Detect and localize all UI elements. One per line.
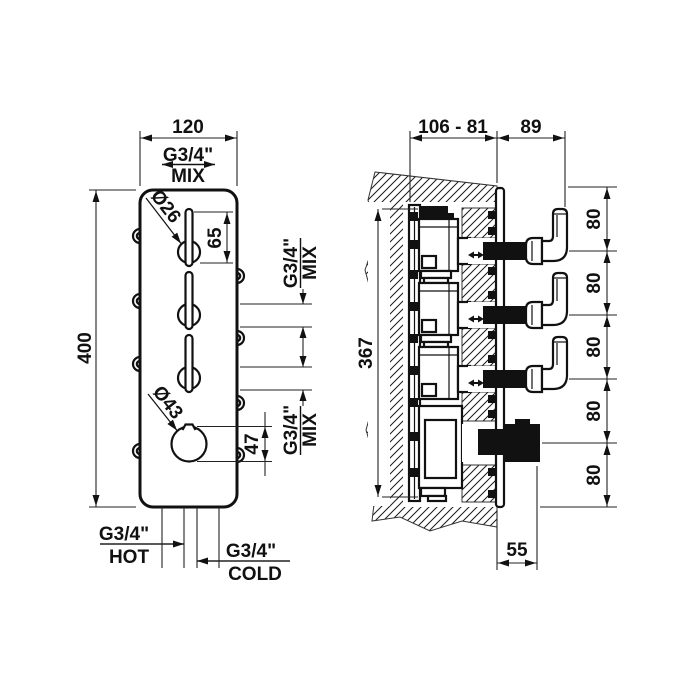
technical-drawing-page: 120 G3/4" MIX 400 Ø26 [0, 0, 700, 700]
label-hot-inlet: G3/4" HOT [99, 524, 184, 568]
dim-spacing-2: 80 [584, 272, 605, 293]
inlet-dims: G3/4" HOT G3/4" COLD [99, 507, 290, 585]
dim-knob-projection-label: 55 [506, 540, 528, 561]
label-side-outlet-lower: G3/4" MIX [281, 405, 321, 455]
dim-height-400: 400 [75, 190, 136, 507]
hot-inlet-label: HOT [109, 547, 150, 568]
side-view: 106 - 81 89 367 [351, 117, 617, 570]
valve-dimension-drawing: 120 G3/4" MIX 400 Ø26 [0, 0, 700, 700]
dim-knob-label: 47 [242, 433, 263, 454]
front-view: 120 G3/4" MIX 400 Ø26 [75, 117, 321, 585]
dim-body-height-label: 367 [356, 337, 377, 369]
label-top-outlet: G3/4" MIX [162, 145, 215, 187]
dim-spacing-1: 80 [584, 208, 605, 229]
top-outlet-label: MIX [171, 166, 205, 187]
side-outlet-lower-thread: G3/4" [281, 405, 302, 455]
dim-spacing-chain: 80 80 80 80 80 [540, 187, 617, 507]
dim-width-label: 120 [172, 117, 204, 138]
side-outlet-upper-label: MIX [300, 246, 321, 280]
dim-spacing-4: 80 [584, 400, 605, 421]
cold-inlet-thread: G3/4" [226, 541, 276, 562]
dim-depth-label: 106 - 81 [418, 117, 488, 138]
side-outlet-upper-thread: G3/4" [281, 238, 302, 288]
cold-inlet-label: COLD [228, 564, 282, 585]
hot-inlet-thread: G3/4" [99, 524, 149, 545]
thermostat-cartridge [419, 406, 462, 501]
dim-lever-length-label: 65 [205, 227, 226, 249]
label-side-outlet-upper: G3/4" MIX [281, 238, 321, 288]
label-cold-inlet: G3/4" COLD [197, 541, 290, 585]
side-outlet-dims: G3/4" MIX G3/4" MIX [240, 238, 321, 455]
side-outlet-lower-label: MIX [300, 413, 321, 447]
dim-height-label: 400 [75, 332, 96, 364]
dim-spacing-5: 80 [584, 464, 605, 485]
faceplate-side [496, 188, 504, 507]
dim-projection-label: 89 [520, 117, 541, 138]
dim-spacing-3: 80 [584, 336, 605, 357]
dim-projection-89: 89 [497, 117, 565, 207]
